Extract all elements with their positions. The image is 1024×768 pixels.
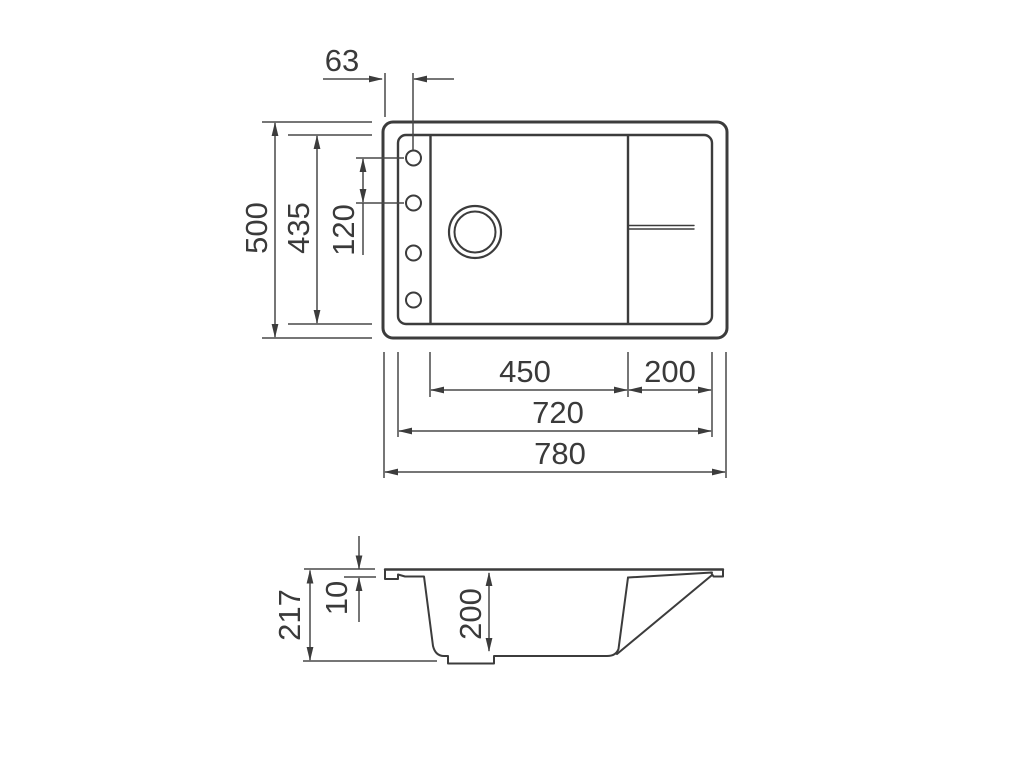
dim-label-500: 500 [239, 202, 274, 254]
sink-outer-edge [383, 122, 727, 338]
faucet-holes [406, 151, 421, 308]
dim-label-435: 435 [281, 202, 316, 254]
section-drainboard-surface [628, 573, 712, 578]
sink-top-view: 63 500 435 120 [239, 43, 727, 478]
faucet-hole-1 [406, 151, 421, 166]
dim-label-63: 63 [325, 43, 359, 78]
faucet-hole-3 [406, 246, 421, 261]
faucet-hole-2 [406, 196, 421, 211]
dim-label-120: 120 [326, 204, 361, 256]
dim-outer-width-780: 780 [385, 436, 725, 472]
dim-label-720: 720 [532, 395, 584, 430]
dim-rim-thickness-10: 10 [319, 536, 376, 622]
drainboard-groove [628, 226, 694, 230]
dim-label-450: 450 [499, 354, 551, 389]
section-underside-slope [617, 576, 712, 655]
dim-bowl-width-450: 450 [431, 354, 627, 390]
dim-label-10: 10 [319, 581, 354, 615]
dim-bowl-depth-200: 200 [453, 573, 489, 651]
section-profile [385, 570, 723, 664]
drain-hole [449, 206, 501, 258]
sink-section-view: 217 10 200 [272, 536, 723, 664]
dim-hole-spacing-120: 120 [326, 158, 404, 256]
technical-drawing: 63 500 435 120 [0, 0, 1024, 768]
dim-label-780: 780 [534, 436, 586, 471]
dim-label-200-top: 200 [644, 354, 696, 389]
dim-label-217: 217 [272, 589, 307, 641]
dim-label-200-section: 200 [453, 588, 488, 640]
section-bowl-profile [385, 570, 628, 664]
faucet-hole-4 [406, 293, 421, 308]
dim-total-height-217: 217 [272, 569, 437, 661]
sink-drawing-canvas: 63 500 435 120 [0, 0, 1024, 768]
dim-drainboard-width-200: 200 [629, 354, 711, 390]
dim-inner-width-720: 720 [399, 395, 711, 431]
